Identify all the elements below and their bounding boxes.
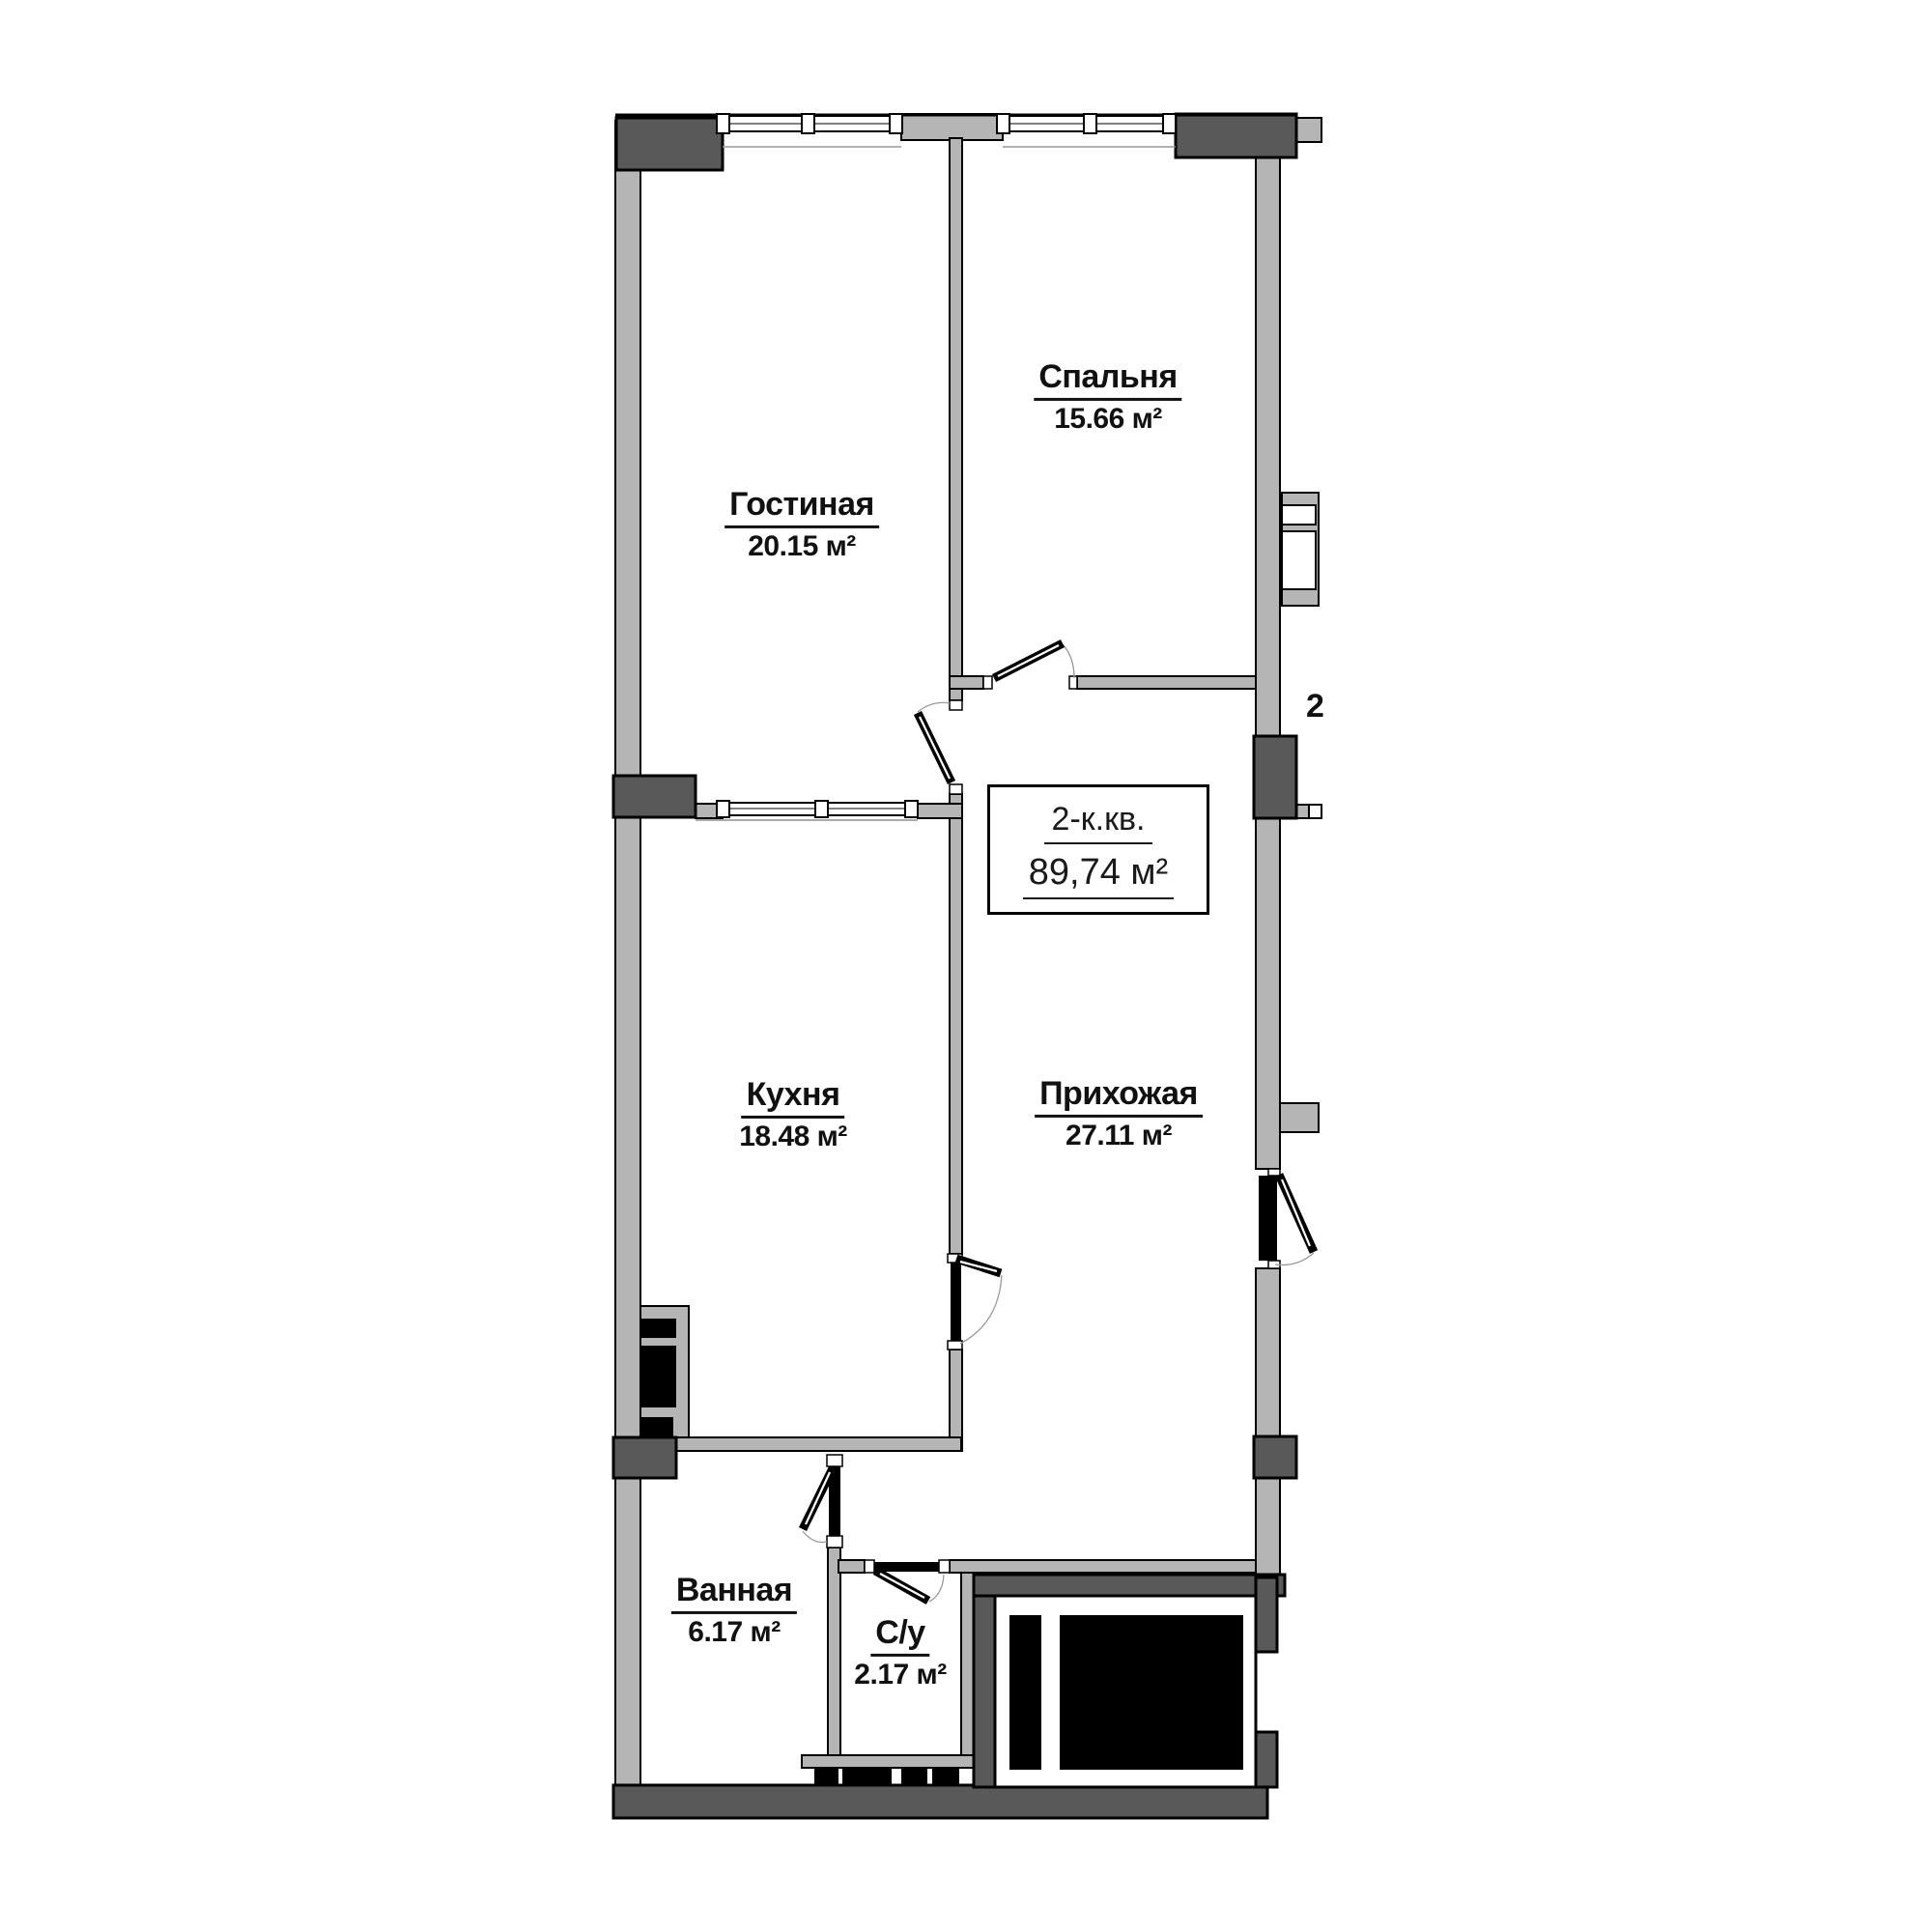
- door-jamb: [983, 676, 992, 689]
- wall-left-outer: [615, 121, 640, 1787]
- window-mullion: [997, 114, 1009, 133]
- apartment-title-box: 2-к.кв. 89,74 м²: [987, 784, 1209, 915]
- wc-vent-4: [932, 1768, 959, 1785]
- room-area: 18.48 м²: [739, 1122, 847, 1152]
- floor-plan-page: Гостиная 20.15 м² Спальня 15.66 м² Кухня…: [0, 0, 1932, 1932]
- window-mullion: [1163, 114, 1176, 133]
- window-bedroom: [997, 114, 1176, 147]
- wall-kitchen-right-lower: [950, 1350, 962, 1451]
- door-bathroom: [803, 1455, 842, 1548]
- wc-vent-2: [842, 1768, 892, 1785]
- window-mullion: [717, 801, 729, 817]
- pilaster-top-right: [1176, 114, 1296, 157]
- door-jamb: [948, 1341, 962, 1350]
- door-jamb: [950, 784, 962, 794]
- niche-opening-large: [1282, 531, 1316, 589]
- window-mullion: [890, 114, 902, 133]
- elevator-shaft: [995, 1596, 1256, 1787]
- walls-light: [615, 114, 1321, 1787]
- wall-stub-mid-right: [1296, 805, 1309, 818]
- wall-right-outer-upper: [1256, 155, 1280, 1169]
- wall-divider-corner: [918, 804, 962, 818]
- door-jamb: [1268, 1169, 1280, 1176]
- room-area: 20.15 м²: [724, 531, 879, 562]
- elevator-wall-left: [974, 1596, 995, 1787]
- door-kitchen: [948, 1254, 1002, 1350]
- door-swing-arc: [1275, 1253, 1314, 1265]
- wall-right-outer-lower: [1256, 1268, 1280, 1577]
- door-wc: [865, 1560, 950, 1602]
- wall-bottom-outer: [613, 1785, 1267, 1818]
- wall-bedroom-bottom-left: [950, 676, 983, 689]
- door-leaf-core: [920, 717, 950, 779]
- wc-vent-3: [901, 1768, 927, 1785]
- pilaster-mid-right: [1254, 736, 1296, 818]
- floor-plan-drawing: [0, 0, 1932, 1932]
- wall-stub-top-right: [1296, 118, 1321, 142]
- pilaster-top-center: [901, 114, 1003, 140]
- door-panel: [951, 1263, 961, 1341]
- door-jamb: [865, 1560, 874, 1573]
- door-jamb: [827, 1536, 842, 1548]
- wall-wc-bottom-band: [802, 1755, 974, 1768]
- wall-bedroom-bottom-right: [1077, 676, 1256, 689]
- door-bedroom: [983, 643, 1077, 689]
- neighbor-clipped-square: [1309, 805, 1321, 818]
- door-leaf-core: [998, 645, 1059, 676]
- door-leaf-core: [1282, 1179, 1310, 1246]
- wall-wc-right: [961, 1573, 974, 1755]
- door-living: [918, 700, 962, 794]
- room-label-bathroom: Ванная 6.17 м²: [671, 1574, 797, 1647]
- room-area: 6.17 м²: [671, 1617, 797, 1648]
- door-jamb: [1069, 676, 1077, 689]
- wall-living-bedroom-divider: [950, 138, 962, 700]
- window-living: [717, 114, 902, 147]
- kitchen-vent-2: [640, 1346, 676, 1407]
- room-name: Прихожая: [1035, 1077, 1203, 1118]
- room-area: 2.17 м²: [854, 1660, 946, 1690]
- wall-stub-below-living-door: [950, 794, 962, 804]
- wall-kitchen-bottom: [676, 1437, 961, 1451]
- wall-kitchen-right: [950, 818, 962, 1254]
- apartment-type: 2-к.кв.: [1044, 801, 1153, 844]
- room-label-bedroom: Спальня 15.66 м²: [1034, 360, 1181, 434]
- window-mullion: [815, 801, 828, 817]
- door-panel: [874, 1562, 939, 1572]
- room-name: Кухня: [742, 1078, 845, 1119]
- elevator-wall-right-lower: [1256, 1732, 1277, 1787]
- door-jamb: [950, 700, 962, 710]
- kitchen-vent-3: [640, 1417, 673, 1437]
- door-panel: [1259, 1176, 1277, 1261]
- door-leaf-core: [880, 1574, 924, 1598]
- room-label-kitchen: Кухня 18.48 м²: [739, 1078, 847, 1151]
- room-name: Ванная: [671, 1574, 797, 1614]
- elevator-car: [1060, 1615, 1243, 1770]
- door-jamb: [827, 1455, 842, 1466]
- door-swing-arc: [918, 702, 950, 712]
- room-name: С/у: [870, 1616, 929, 1657]
- window-mullion: [717, 114, 729, 133]
- pilaster-low-left: [613, 1437, 676, 1478]
- room-area: 27.11 м²: [1035, 1121, 1203, 1151]
- door-swing-arc: [803, 1531, 827, 1543]
- window-mullion: [905, 801, 918, 817]
- wall-stub-right-corridor: [1280, 1103, 1319, 1132]
- wall-wc-top-right: [950, 1560, 1256, 1573]
- door-leaf-core: [806, 1472, 830, 1524]
- room-label-hallway: Прихожая 27.11 м²: [1035, 1077, 1203, 1151]
- pilaster-mid-left: [613, 776, 696, 817]
- apartment-total-area: 89,74 м²: [1023, 852, 1174, 899]
- room-area: 15.66 м²: [1034, 404, 1181, 435]
- door-swing-arc: [1063, 644, 1074, 678]
- elevator-car-counterweight: [1009, 1615, 1041, 1770]
- pilaster-low-right: [1254, 1436, 1296, 1478]
- wall-bath-wc-divider: [828, 1548, 840, 1755]
- door-entrance: [1259, 1169, 1314, 1268]
- kitchen-vent-1: [640, 1319, 676, 1338]
- room-label-living: Гостиная 20.15 м²: [724, 488, 879, 561]
- room-label-wc: С/у 2.17 м²: [854, 1616, 946, 1690]
- elevator-wall-top: [974, 1575, 1285, 1596]
- niche-opening-small: [1282, 505, 1316, 525]
- room-name: Гостиная: [724, 488, 879, 528]
- door-swing-arc: [960, 1275, 1002, 1344]
- door-jamb: [939, 1560, 950, 1573]
- window-mullion: [802, 114, 814, 133]
- wc-vent-1: [814, 1768, 838, 1785]
- elevator-wall-right-upper: [1256, 1577, 1277, 1652]
- room-name: Спальня: [1034, 360, 1181, 401]
- pilaster-top-left: [616, 118, 723, 170]
- neighbor-clipped-text: 2: [1306, 688, 1324, 725]
- window-mullion: [1084, 114, 1096, 133]
- wall-wc-top-left: [838, 1560, 865, 1573]
- door-swing-arc: [929, 1575, 944, 1602]
- window-partition-living-kitchen: [696, 801, 918, 820]
